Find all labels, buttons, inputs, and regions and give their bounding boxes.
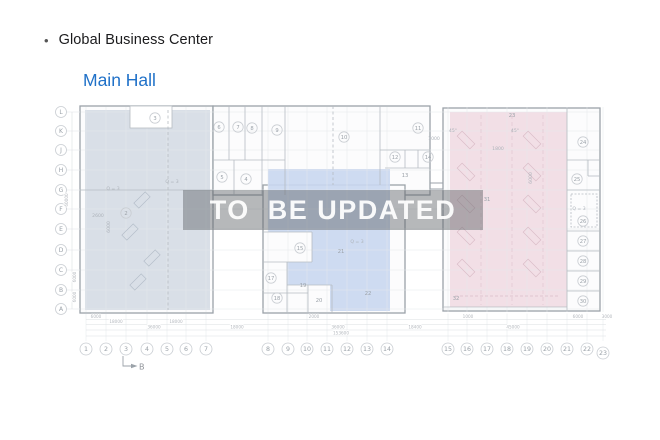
col-grid-label: 18 — [503, 346, 511, 353]
plan-annotation: 45° — [449, 128, 457, 134]
room-number: 3 — [153, 116, 156, 122]
col-grid-label: 7 — [204, 346, 208, 353]
room-number: 14 — [425, 155, 432, 161]
dimension-label: 45000 — [506, 325, 520, 330]
plan-annotation: 6000 — [106, 221, 112, 233]
room-number: 23 — [509, 113, 516, 119]
plan-annotation: 45° — [511, 128, 519, 134]
plan-annotation: 1000 — [428, 136, 440, 142]
plan-annotation: 6000 — [528, 172, 534, 184]
room-number: 30 — [580, 299, 587, 305]
room-number: 12 — [392, 155, 399, 161]
col-grid-label: 13 — [363, 346, 371, 353]
section-marker-arrow-icon — [131, 364, 138, 368]
col-grid-label: 12 — [343, 346, 351, 353]
col-grid-label: 11 — [323, 346, 331, 353]
plan-annotation: 2600 — [92, 213, 104, 219]
col-grid-label: 23 — [599, 350, 607, 357]
dimension-label: 2000 — [309, 314, 320, 319]
col-grid-label: 15 — [444, 346, 452, 353]
dimension-label: 60000 — [64, 193, 69, 207]
dimension-label: 18000 — [230, 325, 244, 330]
col-grid-label: 5 — [165, 346, 169, 353]
row-grid-label: C — [59, 267, 63, 274]
row-grid-label: H — [59, 167, 64, 174]
col-grid-label: 16 — [463, 346, 471, 353]
col-grid-label: 20 — [543, 346, 551, 353]
watermark-text: TO BE UPDATED — [210, 195, 457, 226]
watermark-band: TO BE UPDATED — [183, 190, 483, 230]
room-number: 22 — [365, 291, 372, 297]
col-grid-label: 22 — [583, 346, 591, 353]
room-number: 11 — [415, 126, 422, 132]
section-marker-label: B — [139, 363, 145, 372]
dimension-label: 18000 — [109, 319, 123, 324]
room-number: 29 — [580, 279, 587, 285]
dimension-label: 36000 — [331, 325, 345, 330]
dimension-label: 18000 — [169, 319, 183, 324]
col-grid-label: 17 — [483, 346, 491, 353]
dimension-label: 6000 — [72, 291, 77, 302]
dimension-label: 1000 — [463, 314, 474, 319]
dimension-label: 3000 — [602, 314, 613, 319]
col-grid-label: 3 — [124, 346, 128, 353]
room-number: 18 — [274, 296, 281, 302]
row-grid-label: J — [59, 147, 62, 154]
plan-annotation: Q = 3 — [106, 186, 119, 192]
row-grid-label: F — [59, 206, 63, 213]
col-grid-label: 2 — [104, 346, 108, 353]
room-number: 2 — [124, 211, 127, 217]
dimension-label: 18400 — [408, 325, 422, 330]
section-marker-line — [123, 356, 131, 366]
room-number: 17 — [268, 276, 275, 282]
room-number: 26 — [580, 219, 587, 225]
room-number: 31 — [484, 197, 491, 203]
row-grid-label: D — [59, 247, 64, 254]
dimension-label: 36000 — [147, 325, 161, 330]
dimension-label: 6000 — [72, 271, 77, 282]
plan-annotation: Q = 3 — [165, 179, 178, 185]
plan-annotation: Q = 3 — [350, 239, 363, 245]
row-grid-label: B — [59, 287, 63, 294]
room-number: 5 — [220, 175, 223, 181]
col-grid-label: 14 — [383, 346, 391, 353]
col-grid-label: 6 — [184, 346, 188, 353]
room-number: 20 — [316, 298, 323, 304]
room-number: 13 — [402, 173, 409, 179]
col-grid-label: 8 — [266, 346, 270, 353]
row-grid-label: G — [59, 187, 64, 194]
room-number: 28 — [580, 259, 587, 265]
row-grid-label: E — [59, 226, 63, 233]
dimension-label: 153600 — [333, 331, 349, 336]
room-number: 32 — [453, 296, 460, 302]
plan-annotation: Q = 3 — [572, 206, 585, 212]
room-number: 24 — [580, 140, 587, 146]
col-grid-label: 19 — [523, 346, 531, 353]
room-number: 10 — [341, 135, 348, 141]
room-number: 6 — [217, 125, 220, 131]
room-number: 7 — [236, 125, 239, 131]
room-number: 25 — [574, 177, 581, 183]
room-number: 21 — [338, 249, 345, 255]
room-number: 9 — [275, 128, 278, 134]
col-grid-label: 21 — [563, 346, 571, 353]
col-grid-label: 9 — [286, 346, 290, 353]
col-grid-label: 4 — [145, 346, 149, 353]
room-number: 15 — [297, 246, 304, 252]
room-number: 27 — [580, 239, 587, 245]
col-grid-label: 1 — [84, 346, 88, 353]
plan-annotation: 1800 — [492, 146, 504, 152]
room-number: 19 — [300, 283, 307, 289]
dimension-label: 6000 — [91, 314, 102, 319]
dimension-label: 6000 — [573, 314, 584, 319]
col-grid-label: 10 — [303, 346, 311, 353]
room-number: 8 — [250, 126, 253, 132]
